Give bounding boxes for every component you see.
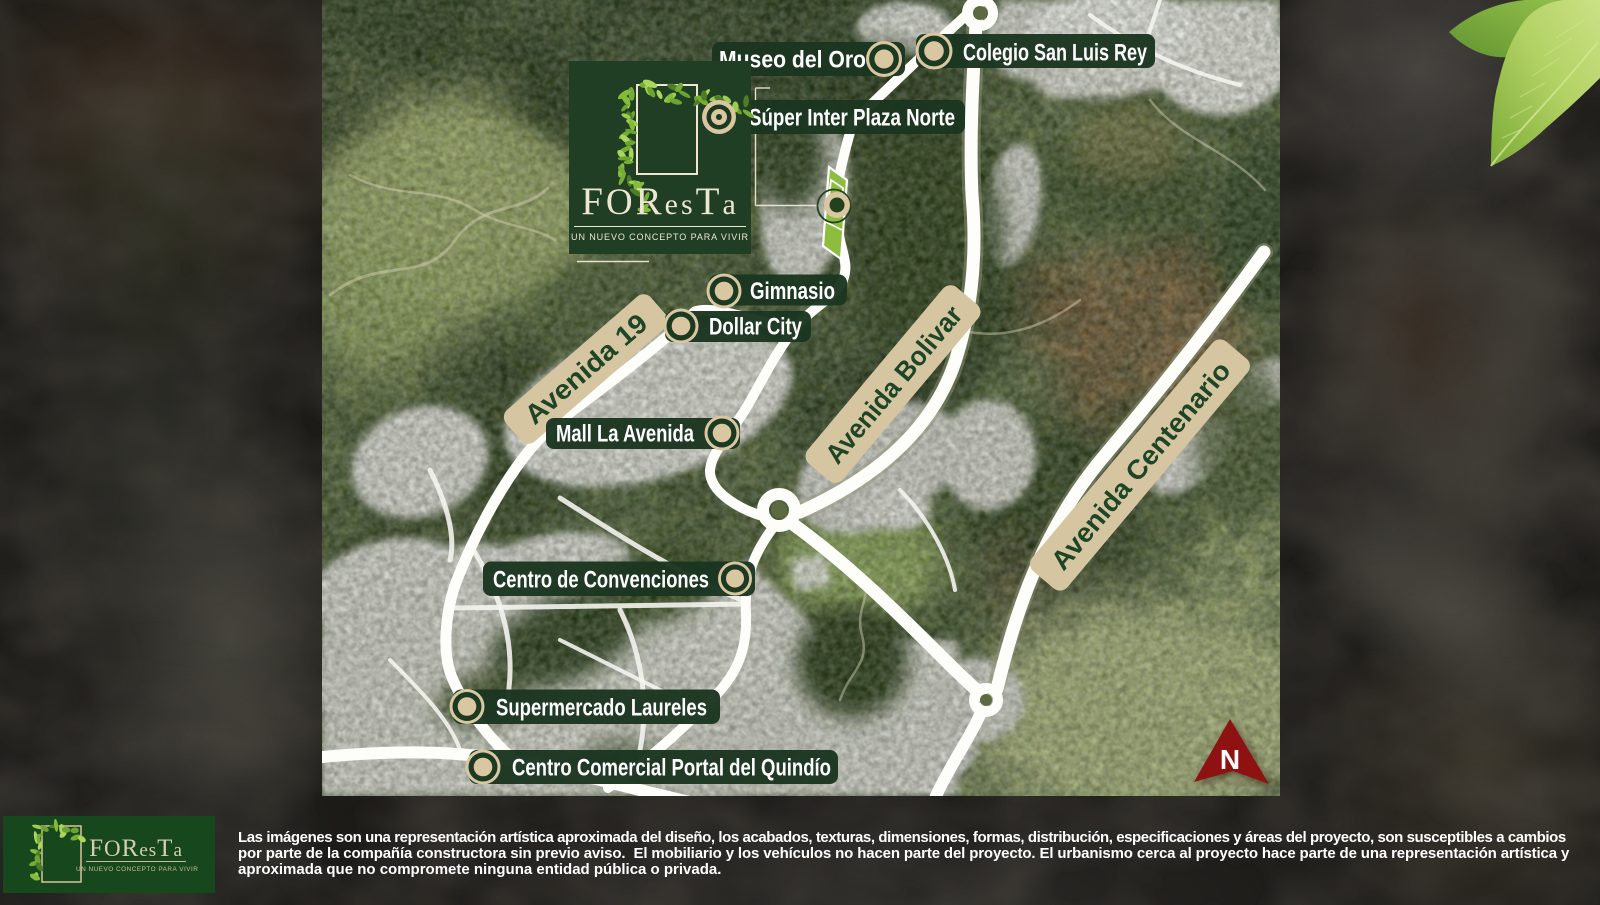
svg-text:Mall La Avenida: Mall La Avenida: [556, 421, 694, 448]
svg-text:Supermercado Laureles: Supermercado Laureles: [496, 695, 707, 722]
svg-text:Dollar City: Dollar City: [709, 314, 802, 341]
svg-text:N: N: [1220, 744, 1240, 775]
svg-text:Súper Inter Plaza Norte: Súper Inter Plaza Norte: [749, 105, 955, 132]
svg-text:Centro Comercial Portal del Qu: Centro Comercial Portal del Quindío: [512, 755, 831, 782]
svg-text:Gimnasio: Gimnasio: [750, 278, 835, 305]
svg-text:Centro de Convenciones: Centro de Convenciones: [493, 567, 709, 594]
svg-text:Colegio San Luis Rey: Colegio San Luis Rey: [963, 40, 1147, 67]
